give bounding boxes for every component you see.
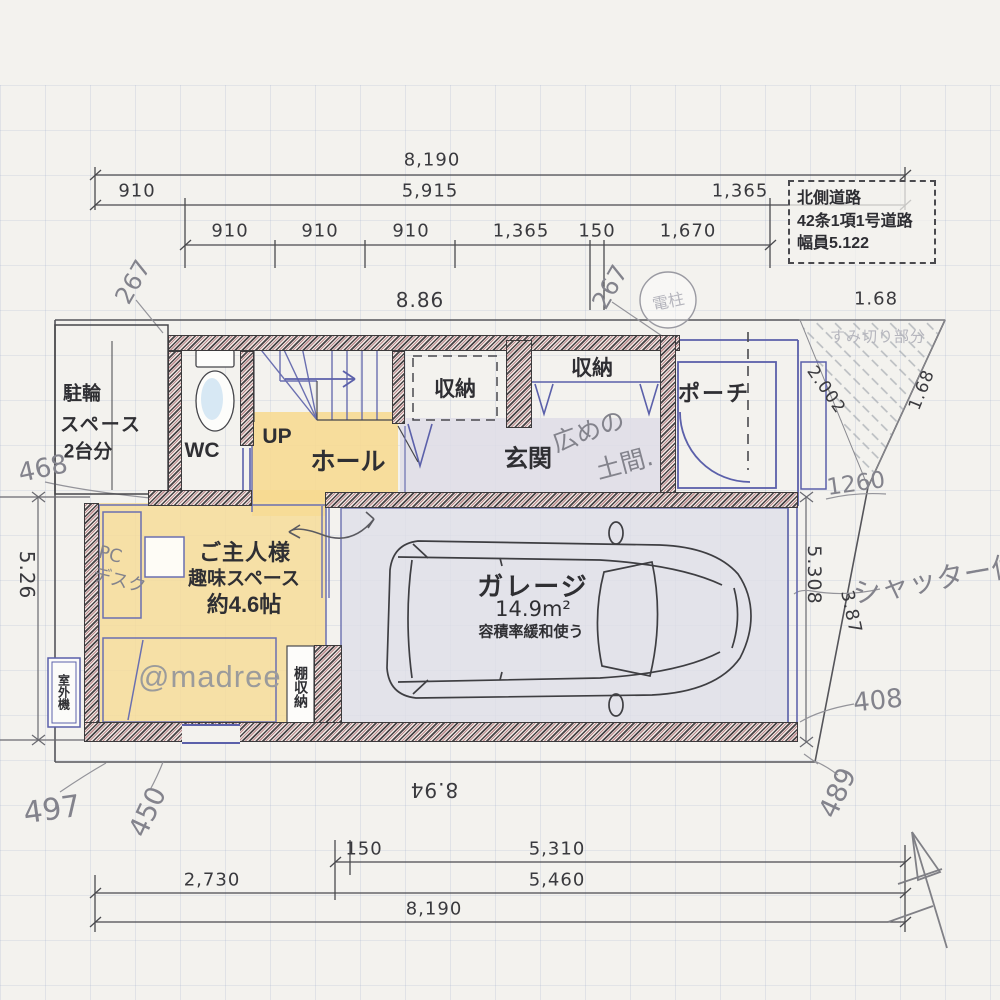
dim-sub-910c: 910 (392, 221, 429, 242)
storage2-label: 収納 (571, 352, 613, 382)
wall-segment (148, 490, 252, 506)
porch-outline (676, 340, 826, 506)
dim-886: 8.86 (396, 288, 445, 312)
road-info-line3: 幅員5.122 (797, 233, 927, 256)
hand-408: 408 (852, 683, 905, 718)
porch-label: ポーチ (678, 376, 750, 408)
corner-cut-label: すみ切り部分 (830, 326, 926, 347)
wall-segment (314, 645, 342, 732)
wall-segment (168, 335, 680, 351)
road-info-line2: 42条1項1号道路 (797, 211, 927, 234)
dim-sub-910a: 910 (211, 221, 248, 242)
wall-segment (168, 351, 182, 500)
dim-total-top: 8,190 (404, 150, 461, 171)
dim-2730: 2,730 (184, 870, 241, 891)
entrance-label: 玄関 (504, 439, 552, 474)
dim-sub-910b: 910 (301, 221, 338, 242)
dim-5308: 5.308 (803, 545, 825, 604)
road-info-box: 北側道路 42条1項1号道路 幅員5.122 (788, 180, 936, 264)
storage1-label: 収納 (434, 373, 476, 403)
floorplan-page: 北側道路 42条1項1号道路 幅員5.122 8,190 910 5,915 1… (0, 0, 1000, 1000)
dim-sub-1365: 1,365 (493, 221, 550, 242)
dim-168-top: 1.68 (854, 289, 898, 310)
dim-sub-150: 150 (578, 221, 615, 242)
wall-segment (392, 351, 405, 424)
up-label: UP (262, 425, 291, 449)
watermark: @madree (138, 659, 282, 695)
bike-space-label-line2: スペース (60, 410, 142, 437)
hobby-label-line1: ご主人様 (199, 535, 291, 567)
garage-note-label: 容積率緩和使う (478, 621, 583, 642)
entrance-door-swing (398, 426, 418, 462)
dim-1365-right: 1,365 (712, 181, 769, 202)
dim-total-bottom: 8,190 (406, 899, 463, 920)
wall-segment (240, 351, 254, 446)
dim-910-left: 910 (118, 181, 155, 202)
wall-segment (506, 340, 532, 428)
bike-space-label-line1: 駐輪 (63, 379, 101, 406)
hobby-label-line3: 約4.6帖 (207, 587, 282, 619)
hall-label: ホール (310, 442, 385, 478)
wall-segment (84, 503, 99, 733)
dim-5460: 5,460 (529, 870, 586, 891)
side-dimension-lines (0, 492, 813, 747)
wall-segment (660, 335, 676, 495)
garage-area-label: 14.9m² (495, 597, 571, 621)
dim-894: 8.94 (410, 778, 459, 802)
wall-opening (182, 724, 240, 744)
front-door-swing (680, 412, 750, 482)
garage-to-hobby-arrow (289, 512, 374, 538)
shelf-storage-label: 棚収納 (291, 666, 311, 708)
north-arrow-icon (888, 832, 947, 948)
toilet-icon (196, 350, 234, 431)
dim-sub-1670: 1,670 (660, 221, 717, 242)
dim-526: 5.26 (15, 551, 39, 600)
dim-5310: 5,310 (529, 839, 586, 860)
dim-5915: 5,915 (402, 181, 459, 202)
wc-door (243, 448, 250, 494)
outdoor-unit-label: 室外機 (56, 674, 73, 710)
wall-segment (325, 492, 798, 508)
wc-label: WC (185, 439, 220, 463)
road-info-line1: 北側道路 (797, 188, 927, 211)
dim-150-bottom: 150 (345, 839, 382, 860)
bike-space-label-line3: 2台分 (64, 437, 113, 464)
